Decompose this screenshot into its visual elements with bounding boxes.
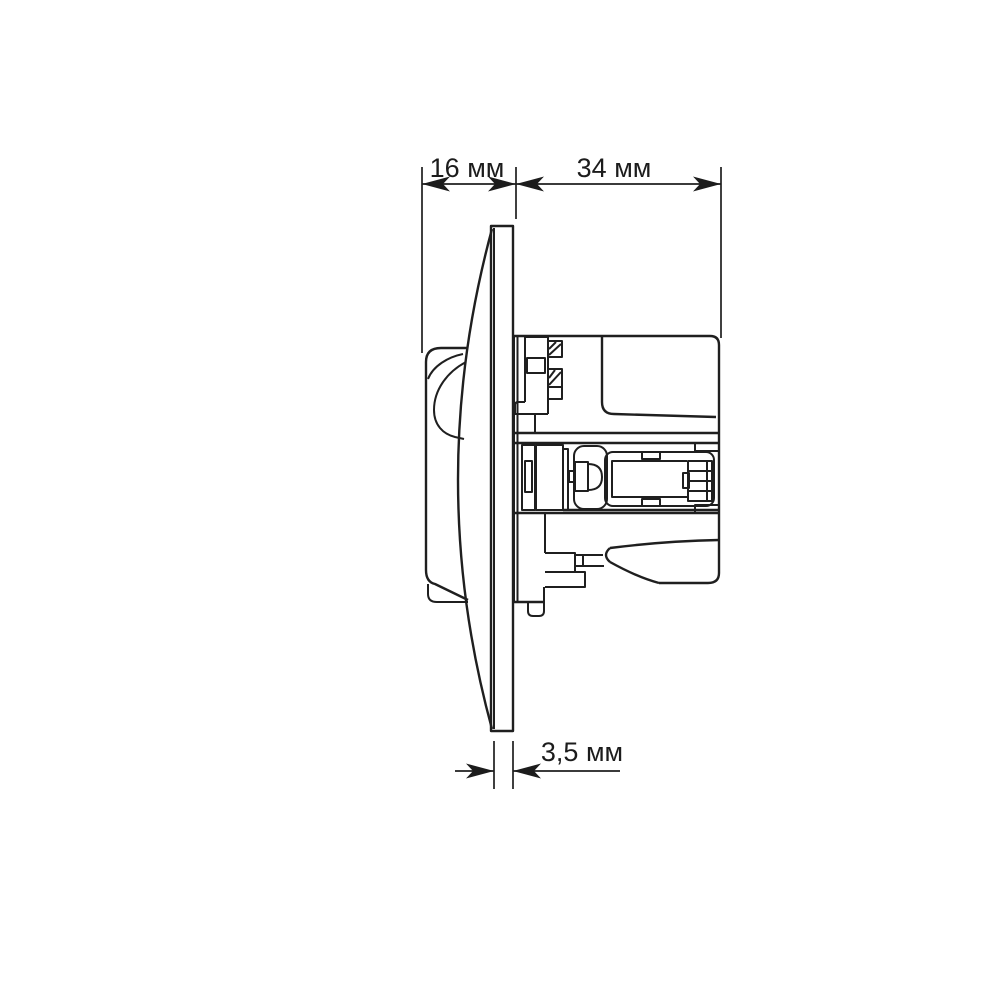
dimension-label-3-5mm: 3,5 мм xyxy=(541,737,623,767)
technical-drawing: 16 мм 34 мм 3,5 мм xyxy=(0,0,1000,1000)
dimension-mounting-depth: 34 мм xyxy=(516,153,721,338)
lower-housing xyxy=(514,513,719,616)
mechanism-body xyxy=(514,336,719,616)
claw-window xyxy=(527,358,545,373)
housing-inner-cavity-line xyxy=(602,336,716,417)
dimension-plate-thickness: 3,5 мм xyxy=(455,737,623,789)
upper-band-right-step xyxy=(695,443,719,451)
clamp-left-column-slot xyxy=(525,461,532,492)
claw-tooth-upper-hatch xyxy=(549,342,561,355)
claw-body xyxy=(525,337,548,414)
clamp-lever-square xyxy=(575,462,588,491)
lower-step-small xyxy=(575,555,583,566)
clamp-lever-bump xyxy=(588,464,602,490)
terminal-screw-slats xyxy=(688,461,712,501)
claw-tooth-lower-hatch xyxy=(549,370,561,385)
dimension-front-depth: 16 мм xyxy=(422,153,516,353)
clamp-lever-tab xyxy=(569,471,575,482)
dimension-label-16mm: 16 мм xyxy=(430,153,505,183)
wire-slot-lines xyxy=(583,555,604,566)
clamp-left-column xyxy=(522,445,535,510)
clamp-block xyxy=(536,445,563,510)
latch-foot xyxy=(528,602,544,616)
cover-plate-profile xyxy=(458,226,513,731)
beak-bottom-edge xyxy=(610,562,659,583)
terminal-cage-inner xyxy=(612,461,687,497)
claw-tooth-block xyxy=(548,387,562,399)
lower-step-upper xyxy=(545,553,575,572)
beak-nose xyxy=(606,548,610,562)
terminal-cage-bottom-tab xyxy=(642,499,660,506)
plate-curved-face xyxy=(458,229,492,729)
terminal-screw-tab xyxy=(683,473,689,488)
beak-top-edge xyxy=(610,540,719,548)
terminal-cage-top-tab xyxy=(642,452,660,459)
lower-step-lower xyxy=(545,572,585,587)
drawing-canvas: 16 мм 34 мм 3,5 мм xyxy=(0,0,1000,1000)
claw-foot xyxy=(515,402,548,414)
socket-face-bottom-step xyxy=(428,584,468,602)
dimension-label-34mm: 34 мм xyxy=(577,153,652,183)
terminal-clamp-assembly xyxy=(522,445,714,510)
mounting-claw xyxy=(515,337,562,433)
